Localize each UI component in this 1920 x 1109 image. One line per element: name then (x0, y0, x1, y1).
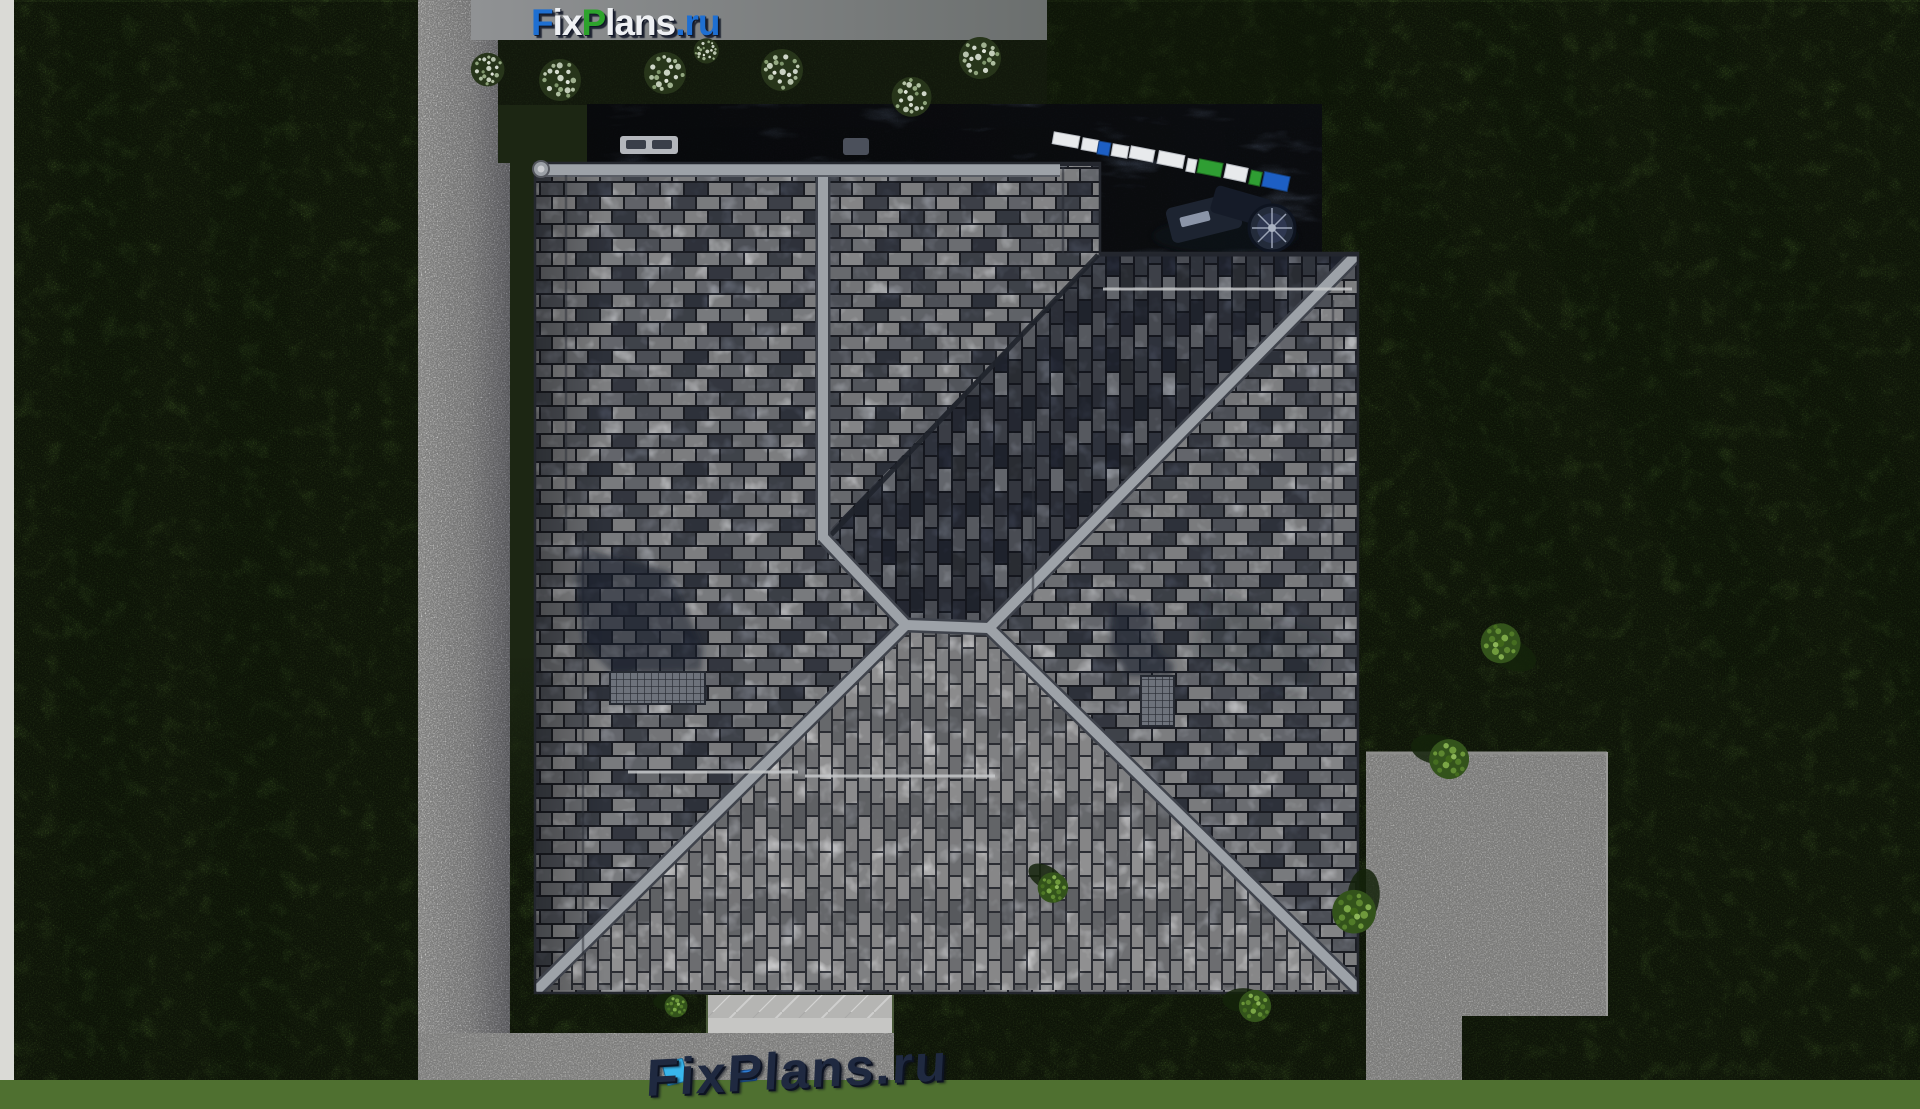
logo-segment-f: F (531, 2, 553, 43)
logo-segment-lans: lans (605, 2, 675, 43)
roof-vent-right (1141, 676, 1174, 726)
logo-segment-ru: .ru (675, 2, 719, 43)
scene-canvas (0, 0, 1920, 1080)
logo-segment-ix: ix (553, 2, 582, 43)
shaded-grass-top-right (1047, 0, 1337, 105)
hip-roof (535, 161, 1361, 993)
fixplans-logo: FixPlans.ru (531, 2, 719, 44)
far-left-curb (0, 0, 14, 1080)
terrace-bench (620, 136, 678, 154)
roof-corner-finial (533, 161, 549, 177)
terrace-stone-block (843, 138, 869, 155)
logo-segment-p: P (581, 2, 605, 43)
left-walkway (418, 0, 510, 1080)
aerial-render: FixPlans.ru FixPlans.ru (0, 0, 1920, 1080)
front-walkway (707, 995, 894, 1033)
roof-vent-left (610, 672, 705, 704)
